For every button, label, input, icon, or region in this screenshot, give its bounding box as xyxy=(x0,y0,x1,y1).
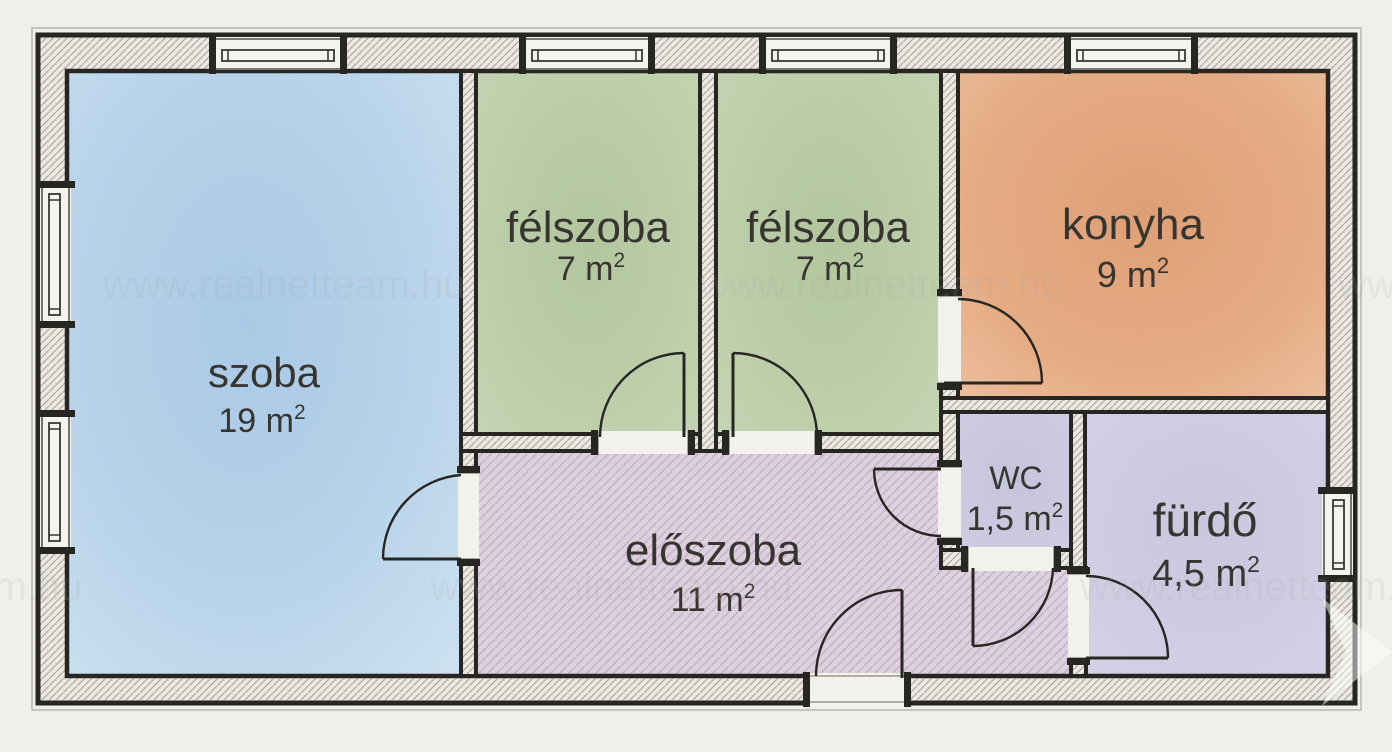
svg-text:szoba: szoba xyxy=(208,349,321,396)
svg-text:www.realnetteam.hu: www.realnetteam.hu xyxy=(699,263,1062,307)
svg-text:félszoba: félszoba xyxy=(506,203,670,252)
svg-text:fürdő: fürdő xyxy=(1153,494,1258,546)
svg-text:19 m2: 19 m2 xyxy=(218,401,305,440)
svg-text:www.realnetteam.hu: www.realnetteam.hu xyxy=(102,263,465,307)
svg-text:félszoba: félszoba xyxy=(746,203,910,252)
svg-text:www.realnetteam.hu: www.realnetteam.hu xyxy=(0,565,82,609)
svg-text:www.re: www.re xyxy=(1337,263,1392,307)
svg-text:www.realnetteam.hu: www.realnetteam.hu xyxy=(1079,565,1392,609)
svg-text:1,5 m2: 1,5 m2 xyxy=(967,499,1064,538)
svg-text:WC: WC xyxy=(989,460,1042,496)
svg-text:konyha: konyha xyxy=(1062,200,1204,249)
svg-text:www.realnetteam.hu: www.realnetteam.hu xyxy=(429,565,792,609)
